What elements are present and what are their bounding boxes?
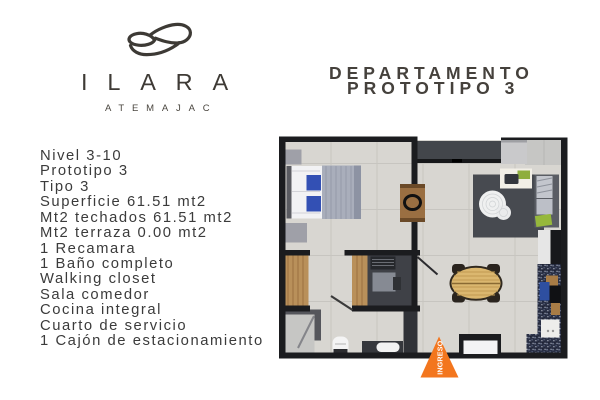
svg-text:INGRESO: INGRESO <box>435 340 444 374</box>
